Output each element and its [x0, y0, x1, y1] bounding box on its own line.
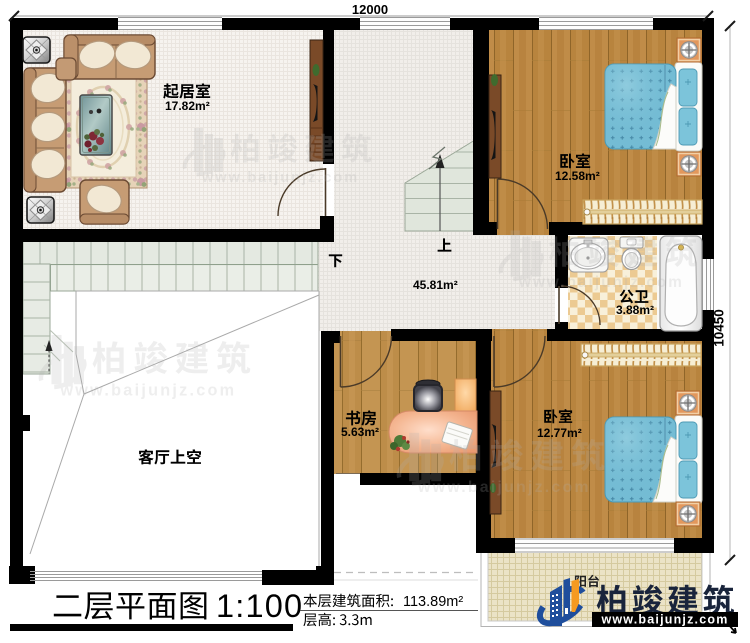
svg-text:www.baijunjz.com: www.baijunjz.com	[600, 613, 728, 627]
svg-text:113.89m²: 113.89m²	[403, 594, 463, 610]
svg-text:www.baijunjz.com: www.baijunjz.com	[201, 170, 359, 186]
svg-text:www.baijunjz.com: www.baijunjz.com	[518, 274, 684, 291]
svg-text:17.82m²: 17.82m²	[165, 99, 210, 113]
svg-text:12.77m²: 12.77m²	[537, 426, 582, 440]
svg-text:5.63m²: 5.63m²	[341, 425, 379, 439]
svg-text:www.baijunjz.com: www.baijunjz.com	[417, 479, 591, 496]
svg-text:12.58m²: 12.58m²	[555, 169, 600, 183]
svg-text:12000: 12000	[352, 2, 388, 17]
svg-text:45.81m²: 45.81m²	[413, 278, 458, 292]
svg-text:10450: 10450	[712, 309, 727, 347]
svg-text:1:100: 1:100	[216, 588, 303, 624]
svg-text:www.baijunjz.com: www.baijunjz.com	[59, 381, 236, 399]
svg-text:3.88m²: 3.88m²	[616, 303, 654, 317]
